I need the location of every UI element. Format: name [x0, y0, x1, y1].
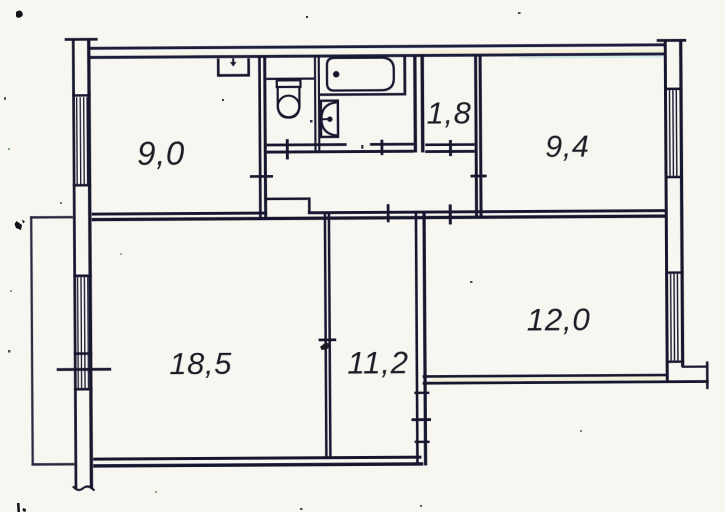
svg-text:9,4: 9,4 — [545, 129, 589, 163]
svg-text:9,0: 9,0 — [137, 134, 185, 171]
svg-text:1,8: 1,8 — [426, 96, 471, 131]
svg-text:11,2: 11,2 — [347, 344, 409, 380]
svg-text:12,0: 12,0 — [527, 301, 591, 337]
svg-text:18,5: 18,5 — [169, 346, 232, 381]
